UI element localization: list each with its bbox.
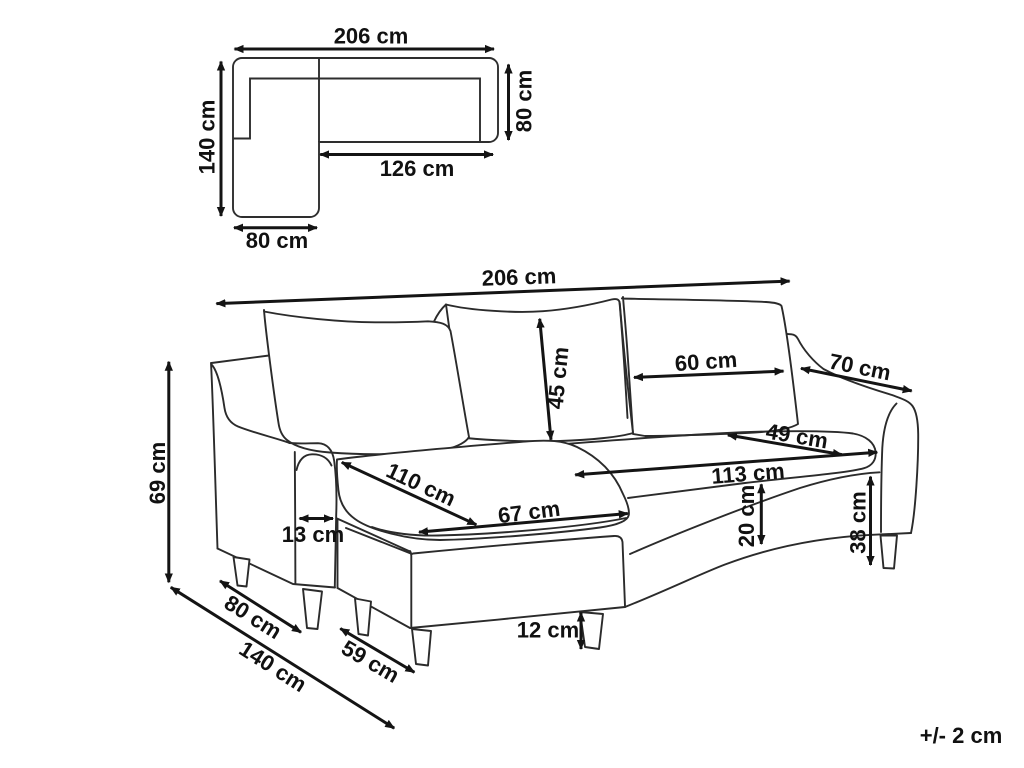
svg-text:80 cm: 80 cm bbox=[220, 590, 286, 644]
svg-text:80 cm: 80 cm bbox=[246, 228, 308, 253]
svg-text:69 cm: 69 cm bbox=[145, 442, 170, 504]
svg-text:206 cm: 206 cm bbox=[481, 263, 556, 291]
svg-text:140 cm: 140 cm bbox=[195, 100, 220, 175]
svg-text:60 cm: 60 cm bbox=[674, 347, 738, 376]
svg-text:113 cm: 113 cm bbox=[710, 458, 785, 489]
svg-text:38 cm: 38 cm bbox=[846, 491, 871, 553]
svg-text:+/- 2 cm: +/- 2 cm bbox=[920, 723, 1003, 748]
svg-text:59 cm: 59 cm bbox=[337, 635, 404, 688]
svg-text:126 cm: 126 cm bbox=[380, 156, 455, 181]
svg-text:49 cm: 49 cm bbox=[764, 419, 830, 454]
svg-text:12 cm: 12 cm bbox=[517, 618, 579, 643]
svg-text:140 cm: 140 cm bbox=[235, 636, 311, 697]
svg-text:80 cm: 80 cm bbox=[512, 70, 537, 132]
svg-text:20 cm: 20 cm bbox=[734, 485, 759, 547]
svg-text:13 cm: 13 cm bbox=[282, 522, 344, 547]
svg-text:206 cm: 206 cm bbox=[334, 24, 409, 49]
